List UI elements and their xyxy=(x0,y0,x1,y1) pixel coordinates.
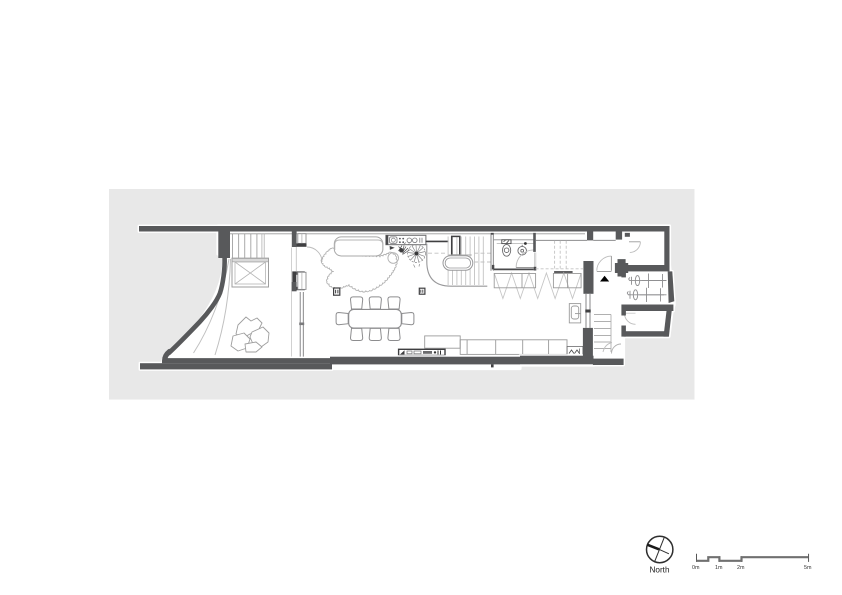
svg-text:0m: 0m xyxy=(692,565,700,571)
svg-text:2m: 2m xyxy=(737,565,745,571)
svg-text:1m: 1m xyxy=(715,565,723,571)
svg-text:North: North xyxy=(649,566,669,575)
svg-text:5m: 5m xyxy=(804,565,812,571)
